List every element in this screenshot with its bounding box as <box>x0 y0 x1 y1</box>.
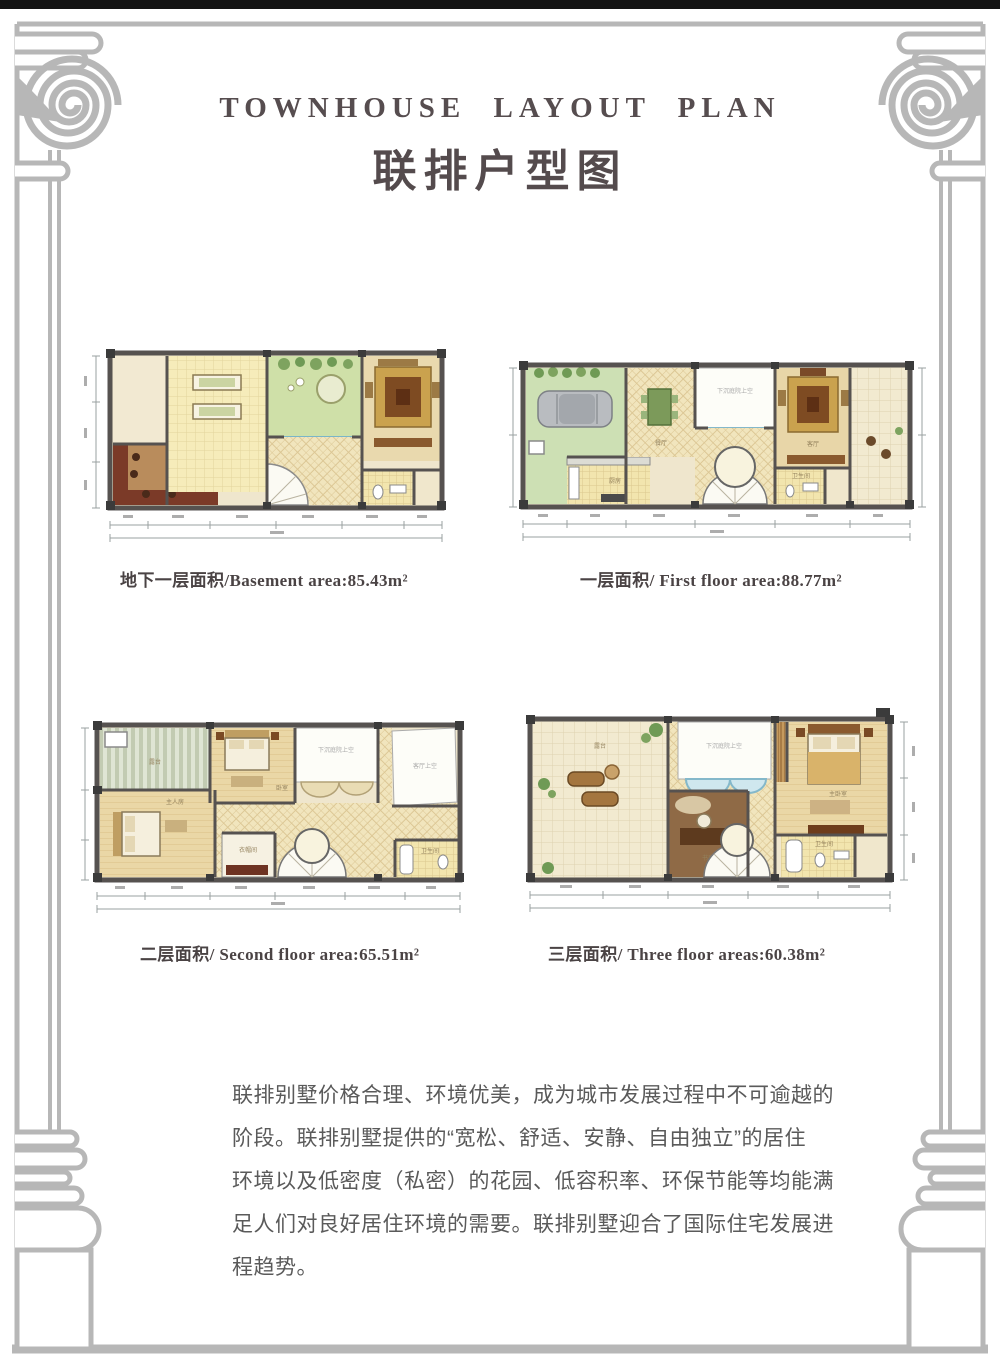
patio <box>850 368 907 504</box>
spiral-stair <box>295 829 329 863</box>
living-void-label: 客厅上空 <box>413 762 437 770</box>
description-line: 程趋势。 <box>232 1246 777 1289</box>
bedroom: 卧室 <box>210 728 295 803</box>
courtyard-void: 下沉庭院上空 <box>295 728 378 797</box>
void-label: 下沉庭院上空 <box>717 387 753 395</box>
closet-label: 衣帽间 <box>239 846 257 854</box>
master-bedroom: 主卧室 <box>775 722 887 835</box>
terrace: 露台 <box>100 728 210 790</box>
title-block: TOWNHOUSE LAYOUT PLAN 联排户型图 <box>0 92 1000 199</box>
master-bedroom: 主人房 <box>100 790 215 877</box>
terrace: 露台 <box>533 722 668 877</box>
second-floor-caption: 二层面积/ Second floor area:65.51m² <box>140 940 419 965</box>
kitchen-label: 厨房 <box>609 477 621 485</box>
first-floor-caption: 一层面积/ First floor area:88.77m² <box>580 566 842 591</box>
first-floor-plan: 厨房 餐厅 下沉庭院上空 <box>505 345 935 565</box>
basement-billiards-room <box>167 356 267 492</box>
page-title-en: TOWNHOUSE LAYOUT PLAN <box>0 92 1000 125</box>
living-room: 客厅 <box>775 368 850 468</box>
first-floor-floor-plan: 厨房 餐厅 下沉庭院上空 <box>505 345 935 565</box>
description-line: 足人们对良好居住环境的需要。联排别墅迎合了国际住宅发展进 <box>232 1203 777 1246</box>
lounge-chair <box>582 792 618 806</box>
dining-room: 餐厅 <box>626 368 695 457</box>
bath-label: 卫生间 <box>815 840 833 848</box>
basement-storage-room <box>113 356 167 444</box>
description-line: 联排别墅价格合理、环境优美，成为城市发展过程中不可逾越的 <box>232 1074 777 1117</box>
kitchen: 厨房 <box>567 457 650 504</box>
terrace-label: 露台 <box>594 742 606 750</box>
fireplace <box>800 368 826 376</box>
living-void: 客厅上空 <box>392 728 457 806</box>
closet: 衣帽间 <box>222 833 275 877</box>
wardrobe <box>775 722 787 782</box>
column-shaft <box>50 150 59 1132</box>
basement-floor-plan <box>60 342 460 568</box>
courtyard-void: 下沉庭院上空 <box>678 722 771 797</box>
third-floor-bathroom: 卫生间 <box>781 835 887 877</box>
first-floor-bathroom: 卫生间 <box>775 468 850 504</box>
dining-label: 餐厅 <box>655 439 667 447</box>
second-floor-floor-plan: 露台 卧室 主人房 <box>75 700 475 935</box>
column-abacus-bar <box>15 34 101 52</box>
living-label: 客厅 <box>807 440 819 448</box>
tv-cabinet <box>808 825 864 834</box>
master-label: 主卧室 <box>829 790 847 798</box>
basement-hall <box>267 437 362 505</box>
void-label: 下沉庭院上空 <box>706 742 742 750</box>
description-line: 阶段。联排别墅提供的“宽松、舒适、安静、自由独立”的居住 <box>232 1117 777 1160</box>
basement-media-room <box>362 356 442 461</box>
third-floor-caption: 三层面积/ Three floor areas:60.38m² <box>548 940 825 965</box>
poster-page: TOWNHOUSE LAYOUT PLAN 联排户型图 <box>0 0 1000 1370</box>
lounge-chair <box>568 772 604 786</box>
terrace-label: 露台 <box>149 758 161 766</box>
first-floor-hall <box>695 428 775 504</box>
ionic-column-left <box>15 34 118 1349</box>
master-label: 主人房 <box>166 798 184 806</box>
bedroom-label: 卧室 <box>276 784 288 792</box>
spiral-stair <box>715 447 755 487</box>
basement-plan <box>60 342 460 568</box>
media-cabinet <box>374 438 432 447</box>
second-floor-bathroom: 卫生间 <box>395 840 458 878</box>
third-floor-floor-plan: 露台 下沉庭院上空 书房 <box>508 688 928 928</box>
second-floor-plan: 露台 卧室 主人房 <box>75 700 475 935</box>
basement-bathroom <box>362 470 442 505</box>
bath-label: 卫生间 <box>792 472 810 480</box>
column-base <box>15 1132 99 1349</box>
third-floor-plan: 露台 下沉庭院上空 书房 <box>508 688 928 928</box>
car-icon <box>538 391 612 427</box>
bath-label: 卫生间 <box>421 847 439 855</box>
void-label: 下沉庭院上空 <box>318 746 354 754</box>
description-line: 环境以及低密度（私密）的花园、低容积率、环保节能等均能满 <box>232 1160 777 1203</box>
top-black-bar <box>0 0 1000 9</box>
basement-caption: 地下一层面积/Basement area:85.43m² <box>120 566 408 591</box>
description-paragraph: 联排别墅价格合理、环境优美，成为城市发展过程中不可逾越的 阶段。联排别墅提供的“… <box>232 1074 777 1289</box>
page-title-zh: 联排户型图 <box>0 135 1000 199</box>
